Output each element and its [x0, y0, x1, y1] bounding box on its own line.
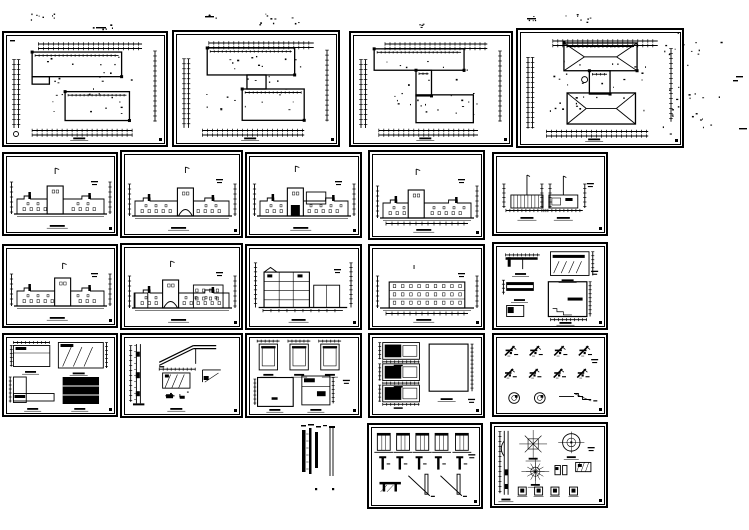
wall-details-drawing — [7, 338, 114, 413]
sheet-roof-plan[interactable] — [516, 28, 684, 148]
sheet-inner-frame — [496, 337, 605, 414]
sheet-inner-frame — [6, 156, 115, 233]
stair-sections-drawing — [497, 247, 604, 326]
sheet-building-section[interactable] — [245, 244, 362, 330]
second-floor-plan-drawing — [177, 35, 336, 143]
side-elevation-drawing — [373, 249, 481, 326]
sheet-inner-frame — [249, 337, 359, 415]
sheet-first-floor-plan[interactable] — [2, 31, 168, 147]
sheet-elevation-5[interactable] — [2, 244, 118, 328]
sheet-elevation-3[interactable] — [245, 152, 362, 238]
sheet-inner-frame — [124, 154, 240, 235]
sheet-inner-frame — [6, 248, 115, 325]
sheet-inner-frame — [372, 248, 482, 327]
elevation-3-drawing — [250, 157, 358, 234]
sheet-inner-frame — [496, 246, 605, 327]
elevation-6-drawing — [125, 248, 239, 326]
elevation-4-drawing — [373, 155, 481, 236]
sheet-frame-details[interactable] — [245, 333, 362, 418]
sheet-inner-frame — [124, 247, 240, 327]
sheet-inner-frame — [520, 32, 681, 145]
sheet-stair-sections[interactable] — [492, 242, 608, 330]
sheet-eave-details[interactable] — [492, 333, 608, 417]
sheet-elevation-6[interactable] — [120, 243, 243, 330]
sheet-misc-details[interactable] — [367, 423, 483, 509]
misc-details-drawing — [372, 428, 479, 505]
elevation-2-drawing — [125, 155, 239, 234]
sheet-side-elevation[interactable] — [368, 244, 485, 330]
sheet-inner-frame — [6, 337, 115, 414]
sheet-inner-frame — [372, 337, 482, 415]
sheet-inner-frame — [124, 337, 240, 415]
sheet-elevation-1[interactable] — [2, 152, 118, 236]
sheet-stair-wall-details[interactable] — [120, 333, 243, 418]
window-stair-details-drawing — [373, 338, 481, 414]
sheet-inner-frame — [6, 35, 165, 144]
sheet-inner-frame — [371, 427, 480, 506]
sheet-wall-details[interactable] — [2, 333, 118, 417]
elevation-1-drawing — [7, 157, 114, 232]
sheet-inner-frame — [353, 35, 510, 144]
sheet-third-floor-plan[interactable] — [349, 31, 513, 147]
sheet-gable-sections[interactable] — [492, 152, 608, 236]
sheet-inner-frame — [496, 156, 605, 233]
sheet-inner-frame — [176, 34, 337, 144]
roof-plan-drawing — [521, 33, 680, 144]
tower-plan-details-drawing — [495, 427, 604, 504]
sheet-inner-frame — [372, 154, 482, 237]
first-floor-plan-drawing — [7, 36, 164, 143]
eave-details-drawing — [497, 338, 604, 413]
sheet-inner-frame — [249, 156, 359, 235]
sheet-inner-frame — [494, 426, 605, 505]
sheet-wall-legend-strip[interactable] — [300, 424, 350, 496]
sheet-elevation-2[interactable] — [120, 150, 243, 238]
third-floor-plan-drawing — [354, 36, 509, 143]
sheet-second-floor-plan[interactable] — [172, 30, 340, 147]
sheet-tower-plan-details[interactable] — [490, 422, 608, 508]
elevation-5-drawing — [7, 249, 114, 324]
drawing-set-canvas — [0, 0, 749, 530]
sheet-inner-frame — [249, 248, 359, 327]
stair-wall-details-drawing — [125, 338, 239, 414]
frame-details-drawing — [250, 338, 358, 414]
wall-legend-strip-drawing — [300, 424, 350, 496]
sheet-elevation-4[interactable] — [368, 150, 485, 240]
building-section-drawing — [250, 249, 358, 326]
gable-sections-drawing — [497, 157, 604, 232]
sheet-window-stair-details[interactable] — [368, 333, 485, 418]
